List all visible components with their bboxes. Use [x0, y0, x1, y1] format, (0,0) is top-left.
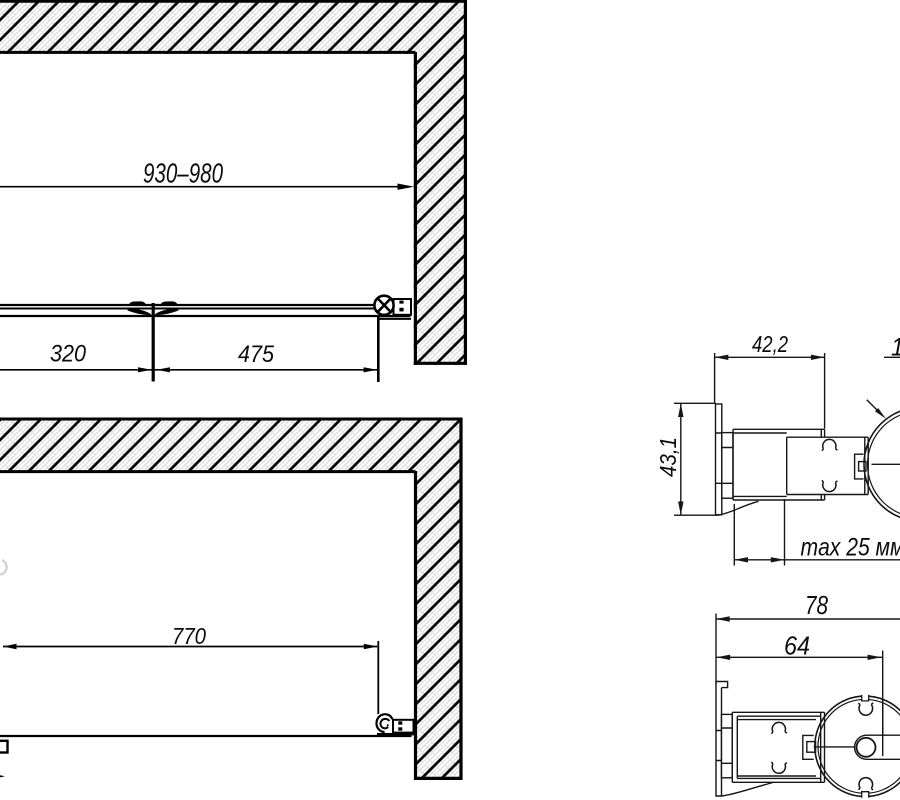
svg-text:78: 78: [805, 590, 828, 620]
svg-text:43,1: 43,1: [655, 437, 681, 477]
svg-text:42,2: 42,2: [752, 331, 788, 357]
svg-text:770: 770: [172, 623, 206, 649]
svg-text:320: 320: [50, 341, 87, 368]
svg-text:64: 64: [784, 631, 810, 661]
svg-text:max 25 мм: max 25 мм: [801, 534, 900, 562]
svg-text:930–980: 930–980: [143, 158, 223, 189]
svg-text:15: 15: [891, 334, 900, 362]
svg-text:475: 475: [238, 341, 275, 368]
